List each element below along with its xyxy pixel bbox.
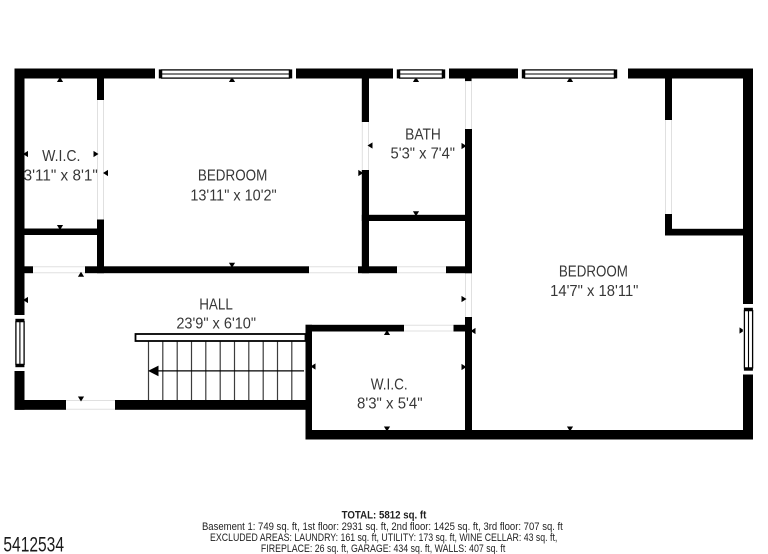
- svg-text:BATH: BATH: [405, 127, 441, 144]
- svg-text:W.I.C.: W.I.C.: [42, 148, 80, 165]
- svg-text:5412534: 5412534: [3, 533, 64, 554]
- svg-text:HALL: HALL: [199, 297, 233, 314]
- svg-text:BEDROOM: BEDROOM: [559, 263, 628, 280]
- svg-text:8'3" x 5'4": 8'3" x 5'4": [357, 395, 423, 412]
- svg-text:23'9" x 6'10": 23'9" x 6'10": [176, 315, 256, 332]
- svg-text:14'7" x 18'11": 14'7" x 18'11": [550, 283, 638, 300]
- svg-text:TOTAL: 5812 sq. ft: TOTAL: 5812 sq. ft: [342, 510, 427, 522]
- svg-text:5'3" x 7'4": 5'3" x 7'4": [391, 146, 456, 163]
- svg-text:BEDROOM: BEDROOM: [198, 168, 267, 185]
- svg-text:3'11" x 8'1": 3'11" x 8'1": [24, 168, 98, 185]
- svg-text:13'11" x 10'2": 13'11" x 10'2": [190, 188, 276, 205]
- svg-text:W.I.C.: W.I.C.: [371, 376, 408, 393]
- svg-text:FIREPLACE: 26 sq. ft, GARAGE:: FIREPLACE: 26 sq. ft, GARAGE: 434 sq. ft…: [261, 543, 506, 554]
